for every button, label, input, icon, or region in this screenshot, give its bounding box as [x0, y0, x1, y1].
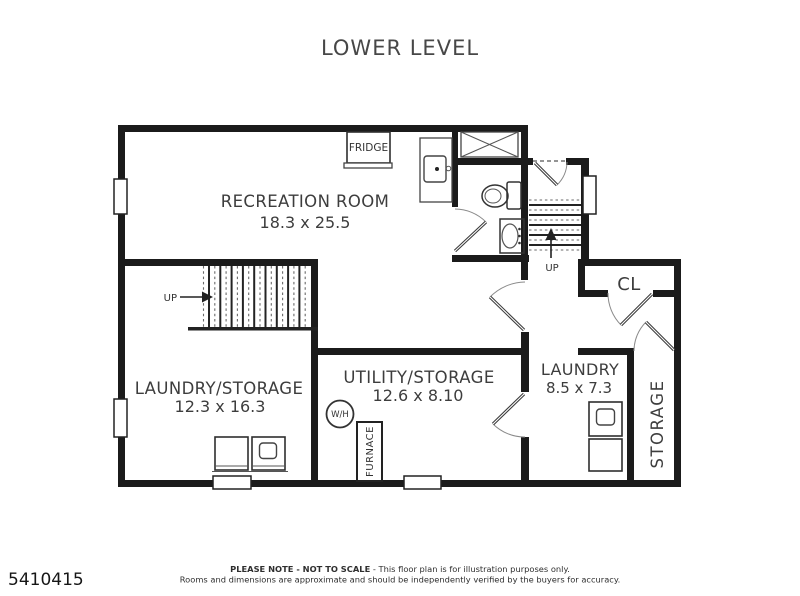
- faucet-dot-icon: [518, 235, 521, 238]
- door-closet: [608, 293, 652, 325]
- footer-note-regular: - This floor plan is for illustration pu…: [370, 564, 570, 574]
- water-heater: W/H: [327, 401, 354, 428]
- wall-top-exterior: [118, 125, 528, 132]
- window-right-stairs: [583, 176, 596, 214]
- stairs-right: UP: [529, 200, 581, 274]
- wall-stairdoor-stub: [566, 158, 581, 165]
- stairs-left: UP: [164, 266, 318, 331]
- utility-storage-label: UTILITY/STORAGE: [343, 368, 494, 387]
- wall-cl-bottom-left: [578, 290, 608, 297]
- fridge: FRIDGE: [344, 132, 392, 168]
- fridge-label: FRIDGE: [349, 142, 388, 154]
- wall-cl-top: [578, 259, 681, 266]
- page-title: LOWER LEVEL: [321, 36, 479, 60]
- recreation-room-dims: 18.3 x 25.5: [260, 213, 351, 232]
- listing-id: 5410415: [8, 570, 84, 590]
- bar-counter: [420, 138, 452, 202]
- water-heater-label: W/H: [331, 410, 349, 420]
- wall-hall-b: [521, 437, 529, 481]
- dryer-box: [215, 437, 248, 470]
- furnace-label: FURNACE: [365, 426, 376, 477]
- wall-bath-bottom: [452, 255, 529, 262]
- utility-storage-dims: 12.6 x 8.10: [373, 386, 464, 405]
- window-bottom-mid: [404, 476, 441, 489]
- wall-center-vertical: [311, 259, 318, 481]
- door-storage: [634, 322, 674, 351]
- storage-label: STORAGE: [648, 379, 667, 468]
- closet-label: CL: [617, 274, 641, 295]
- footer-note-bold: PLEASE NOTE - NOT TO SCALE: [230, 564, 370, 574]
- wall-shower-bottom: [452, 158, 533, 165]
- floor-plan-drawing: LOWER LEVEL: [0, 0, 800, 596]
- washer-door-icon: [597, 409, 615, 425]
- toilet-bowl: [482, 185, 508, 207]
- sink-basin: [502, 224, 518, 248]
- footer: PLEASE NOTE - NOT TO SCALE - This floor …: [8, 564, 620, 590]
- faucet-dot-icon: [518, 228, 521, 231]
- wall-recroom-divider: [118, 259, 318, 266]
- laundry-dims: 8.5 x 7.3: [546, 379, 612, 397]
- door-stairs-top: [533, 161, 567, 185]
- dryer-box: [589, 439, 622, 471]
- bathroom-sink: [500, 219, 524, 253]
- wall-bath-left: [452, 125, 458, 207]
- wall-utility-top: [311, 348, 529, 355]
- laundry-storage-label: LAUNDRY/STORAGE: [135, 379, 304, 398]
- washer-dryer-left: [212, 437, 288, 472]
- recreation-room-label: RECREATION ROOM: [221, 192, 390, 211]
- door-recroom-hall: [490, 282, 525, 330]
- stairs-left-up-label: UP: [164, 293, 177, 304]
- wall-cl-bottom-right: [653, 290, 681, 297]
- wall-hall-a: [521, 332, 529, 392]
- shower: [461, 132, 518, 157]
- door-utility: [493, 394, 525, 437]
- furnace: FURNACE: [357, 422, 382, 481]
- footer-disclaimer: Rooms and dimensions are approximate and…: [180, 575, 620, 585]
- toilet-bowl-inner: [485, 189, 501, 203]
- window-left-lower: [114, 399, 127, 437]
- laundry-label: LAUNDRY: [541, 360, 619, 379]
- wall-storage-left: [627, 348, 634, 481]
- stairs-left-arrow-head-icon: [202, 292, 213, 303]
- wall-storage-top: [578, 348, 634, 355]
- stairs-right-up-label: UP: [545, 263, 558, 274]
- faucet-dot-icon: [518, 242, 521, 245]
- footer-note: PLEASE NOTE - NOT TO SCALE - This floor …: [230, 564, 570, 574]
- window-bottom-left: [213, 476, 251, 489]
- washer-door-icon: [260, 443, 277, 459]
- window-left-upper: [114, 179, 127, 214]
- washer-dryer-right: [589, 402, 622, 471]
- fridge-counter-lip: [344, 163, 392, 168]
- wall-bottom-exterior: [118, 480, 681, 487]
- floor-plan-page: LOWER LEVEL: [0, 0, 800, 596]
- door-bathroom: [455, 209, 486, 251]
- toilet: [482, 182, 521, 209]
- bar-sink-drain-icon: [435, 167, 439, 171]
- stairs-left-edge: [188, 327, 318, 331]
- toilet-tank: [507, 182, 521, 209]
- laundry-storage-dims: 12.3 x 16.3: [175, 397, 266, 416]
